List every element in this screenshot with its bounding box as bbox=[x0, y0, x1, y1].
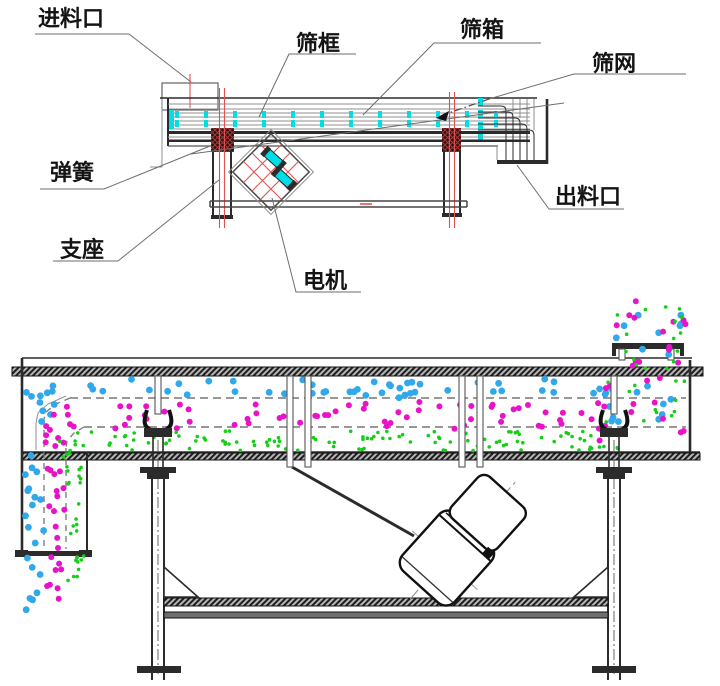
left-foot bbox=[137, 666, 181, 673]
callout-screen-box: 筛箱 bbox=[363, 17, 541, 115]
label-feed-inlet: 进料口 bbox=[38, 6, 104, 31]
callout-feed-inlet: 进料口 bbox=[35, 6, 191, 82]
label-motor: 电机 bbox=[303, 268, 347, 293]
label-screen-mesh: 筛网 bbox=[592, 51, 636, 76]
box-top-cover bbox=[12, 367, 703, 376]
motor-channel-right-b bbox=[477, 376, 483, 467]
label-support: 支座 bbox=[60, 237, 104, 262]
callout-motor: 电机 bbox=[272, 198, 361, 293]
base-bar bbox=[210, 201, 467, 207]
screen-deck-lines bbox=[36, 396, 686, 549]
spring-hanger-right bbox=[611, 376, 617, 414]
label-screen-box: 筛箱 bbox=[460, 17, 504, 42]
cross-beam-lower bbox=[164, 612, 608, 618]
vibrating-screen-diagram: 进料口 筛框 筛箱 筛网 弹簧 支座 电机 出料口 bbox=[0, 0, 720, 686]
diagram-page: 进料口 筛框 筛箱 筛网 弹簧 支座 电机 出料口 bbox=[0, 0, 720, 686]
leader-screen-frame bbox=[259, 54, 356, 117]
motor-channel-left-a bbox=[287, 376, 293, 467]
gusset-left bbox=[164, 567, 198, 597]
cross-beam-upper bbox=[164, 598, 608, 606]
bottom-diagram bbox=[12, 298, 703, 680]
leader-screen-mesh bbox=[489, 74, 686, 99]
vibrator-weight-upper bbox=[260, 146, 287, 172]
right-foot bbox=[592, 666, 636, 673]
callout-screen-mesh: 筛网 bbox=[436, 51, 686, 121]
label-discharge-outlet: 出料口 bbox=[555, 184, 621, 209]
motor-mount-brace bbox=[292, 467, 414, 536]
box-bottom-plate bbox=[22, 453, 700, 460]
callout-spring: 弹簧 bbox=[40, 146, 210, 189]
spring-right bbox=[442, 128, 461, 152]
vibrator-weight-lower bbox=[271, 166, 298, 192]
spring-hanger-left bbox=[155, 376, 161, 414]
screen-box-shell bbox=[12, 358, 703, 460]
label-spring: 弹簧 bbox=[50, 160, 94, 185]
motor-channel-left-b bbox=[305, 376, 311, 467]
callout-support: 支座 bbox=[53, 180, 219, 262]
callout-discharge-outlet: 出料口 bbox=[517, 165, 624, 209]
top-diagram: 进料口 筛框 筛箱 筛网 弹簧 支座 电机 出料口 bbox=[35, 6, 686, 293]
label-screen-frame: 筛框 bbox=[296, 31, 340, 56]
gusset-right bbox=[574, 567, 608, 597]
motor-channel-right-a bbox=[459, 376, 465, 467]
leader-feed-inlet bbox=[35, 34, 191, 82]
